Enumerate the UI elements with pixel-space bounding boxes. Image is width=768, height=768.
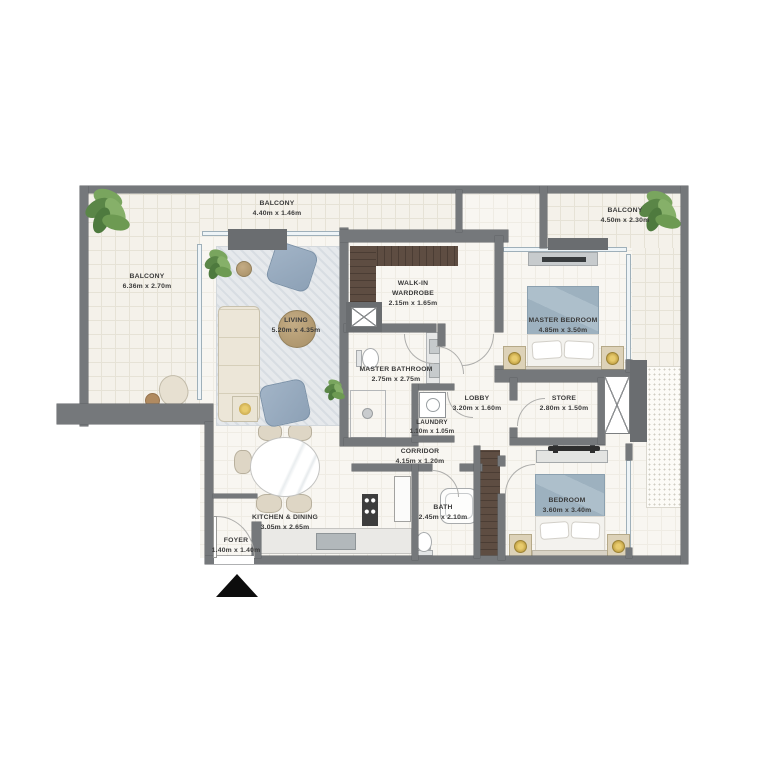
room-name: LOBBY <box>447 394 507 404</box>
room-name: BATH <box>413 503 473 513</box>
room-dims: 4.40m x 1.46m <box>237 209 317 219</box>
wall <box>474 446 480 558</box>
wall <box>495 236 503 332</box>
plant-icon <box>204 250 234 282</box>
room-dims: 4.85m x 3.50m <box>523 326 603 336</box>
walkin-wardrobe-cabinet <box>350 246 376 308</box>
room-dims: 1.40m x 1.40m <box>208 546 264 556</box>
window-master-bedroom-east <box>626 254 631 360</box>
plant-icon <box>84 190 132 236</box>
wall <box>438 324 445 346</box>
room-dims: 3.20m x 1.60m <box>447 404 507 414</box>
room-name: LAUNDRY <box>406 419 458 428</box>
room-label-bedroom: BEDROOM 3.60m x 3.40m <box>527 496 607 516</box>
wall <box>213 494 257 498</box>
wall <box>340 228 348 446</box>
wall <box>205 556 688 564</box>
room-name: FOYER <box>208 536 264 546</box>
wall <box>456 190 462 232</box>
room-label-walk-in-wardrobe: WALK-IN WARDROBE 2.15m x 1.65m <box>383 279 443 309</box>
room-dims: 2.80m x 1.50m <box>524 404 604 414</box>
room-dims: 3.60m x 3.40m <box>527 506 607 516</box>
plant-icon <box>324 380 346 402</box>
pillow <box>571 521 601 539</box>
room-dims: 3.05m x 2.65m <box>240 523 330 533</box>
room-label-master-bathroom: MASTER BATHROOM 2.75m x 2.75m <box>352 365 440 385</box>
tv-icon <box>542 257 586 262</box>
wall <box>510 438 605 445</box>
entry-arrow-icon <box>216 574 258 597</box>
luggage-bench <box>548 446 600 451</box>
washing-machine <box>419 392 446 418</box>
wall <box>80 186 688 193</box>
hallway-closet <box>479 450 500 556</box>
wall <box>498 494 505 560</box>
nightstand-lamp <box>601 346 624 370</box>
room-dims: 2.15m x 1.65m <box>383 299 443 309</box>
room-name: CORRIDOR <box>384 447 456 457</box>
room-name: MASTER BEDROOM <box>523 316 603 326</box>
tray-table <box>232 396 258 422</box>
room-name: BALCONY <box>585 206 665 216</box>
room-label-lobby: LOBBY 3.20m x 1.60m <box>447 394 507 414</box>
room-dims: 2.75m x 2.75m <box>352 375 440 385</box>
wall <box>540 186 547 248</box>
room-label-store: STORE 2.80m x 1.50m <box>524 394 604 414</box>
wall <box>626 548 632 558</box>
nightstand-lamp <box>509 534 532 558</box>
room-dims: 2.45m x 2.10m <box>413 513 473 523</box>
room-dims: 5.20m x 4.35m <box>258 326 334 336</box>
room-name: BALCONY <box>237 199 317 209</box>
dining-chair <box>286 494 312 513</box>
hatched-service-strip <box>646 366 684 508</box>
room-dims: 4.15m x 1.20m <box>384 457 456 467</box>
room-name: MASTER BATHROOM <box>352 365 440 375</box>
pillow <box>531 340 562 360</box>
room-name: LIVING <box>258 316 334 326</box>
duct-shaft-icon <box>604 376 630 434</box>
dresser <box>536 450 608 463</box>
wall <box>626 444 632 460</box>
room-label-bath: BATH 2.45m x 2.10m <box>413 503 473 523</box>
room-label-master-bedroom: MASTER BEDROOM 4.85m x 3.50m <box>523 316 603 336</box>
kitchen-sink <box>316 533 356 550</box>
nightstand-lamp <box>503 346 526 370</box>
wall <box>344 438 418 446</box>
room-label-balcony-left: BALCONY 6.36m x 2.70m <box>107 272 187 292</box>
window-living-west <box>197 244 202 400</box>
wall <box>340 230 508 242</box>
room-label-balcony-right: BALCONY 4.50m x 2.30m <box>585 206 665 226</box>
room-label-laundry: LAUNDRY 1.10m x 1.05m <box>406 419 458 437</box>
fridge <box>394 476 411 522</box>
room-name: WALK-IN WARDROBE <box>383 279 443 299</box>
shaft-frame <box>630 360 647 442</box>
duct-shaft-icon <box>351 307 377 327</box>
room-dims: 4.50m x 2.30m <box>585 216 665 226</box>
balcony-right-floor-side <box>632 248 681 366</box>
wall <box>412 384 454 390</box>
wall <box>681 186 688 564</box>
floor-plan: BALCONY 6.36m x 2.70m BALCONY 4.40m x 1.… <box>0 0 768 768</box>
wall <box>510 378 517 400</box>
room-label-living: LIVING 5.20m x 4.35m <box>258 316 334 336</box>
room-name: BALCONY <box>107 272 187 282</box>
room-name: BEDROOM <box>527 496 607 506</box>
room-name: KITCHEN & DINING <box>240 513 330 523</box>
dining-chair <box>256 494 282 513</box>
room-name: STORE <box>524 394 604 404</box>
pillow <box>539 521 569 540</box>
room-dims: 1.10m x 1.05m <box>406 428 458 437</box>
wall <box>498 456 505 466</box>
room-dims: 6.36m x 2.70m <box>107 282 187 292</box>
dining-table <box>250 437 320 497</box>
room-label-balcony-top: BALCONY 4.40m x 1.46m <box>237 199 317 219</box>
wall <box>548 238 608 250</box>
pillow <box>564 340 595 360</box>
room-label-foyer: FOYER 1.40m x 1.40m <box>208 536 264 556</box>
shower <box>350 390 386 438</box>
side-table <box>236 261 252 277</box>
tv-unit-living <box>228 229 287 250</box>
wall <box>57 404 213 424</box>
room-label-kitchen-dining: KITCHEN & DINING 3.05m x 2.65m <box>240 513 330 533</box>
stove <box>362 494 378 526</box>
room-label-corridor: CORRIDOR 4.15m x 1.20m <box>384 447 456 467</box>
